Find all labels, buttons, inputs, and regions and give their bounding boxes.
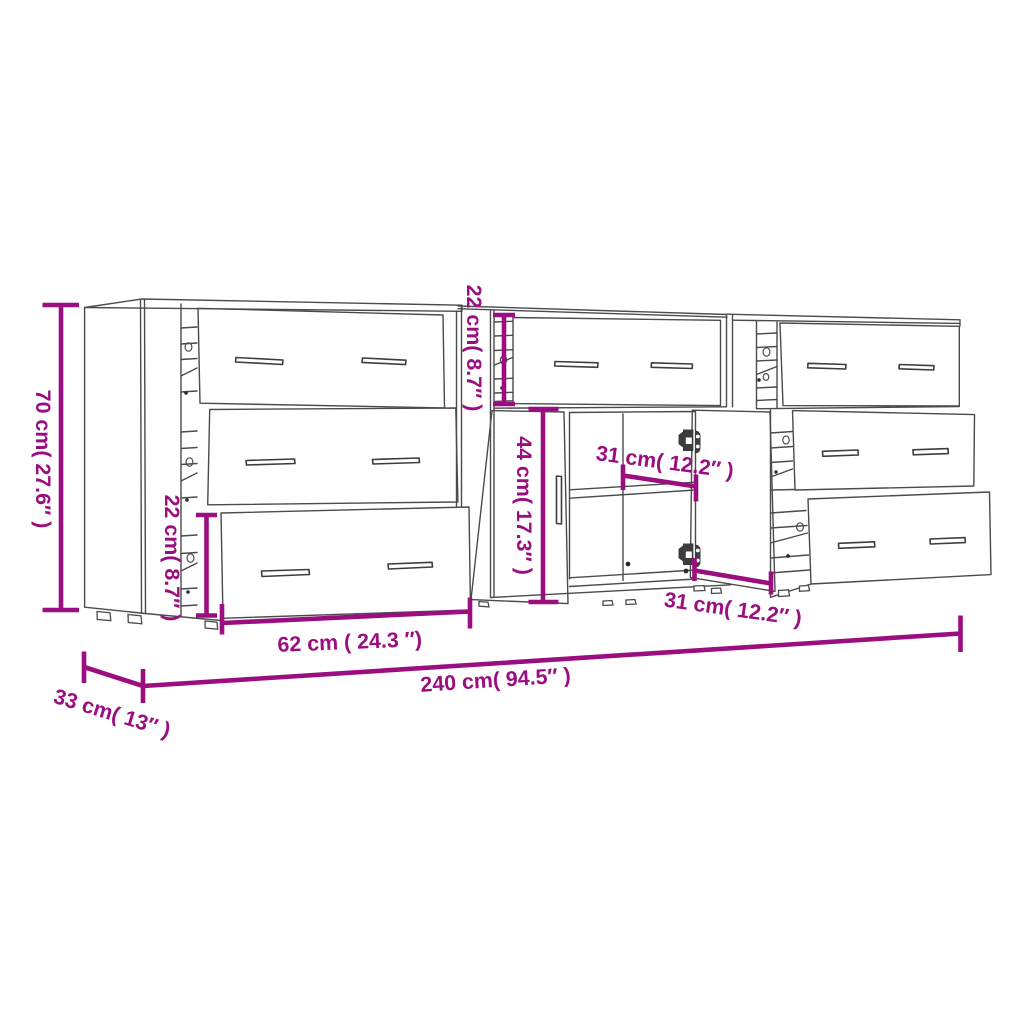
svg-text:22 cm( 8.7″ ): 22 cm( 8.7″ ) — [160, 495, 184, 622]
svg-text:44 cm( 17.3″ ): 44 cm( 17.3″ ) — [512, 436, 536, 575]
svg-text:22 cm( 8.7″ ): 22 cm( 8.7″ ) — [462, 285, 486, 412]
svg-text:70 cm( 27.6″ ): 70 cm( 27.6″ ) — [31, 390, 55, 529]
